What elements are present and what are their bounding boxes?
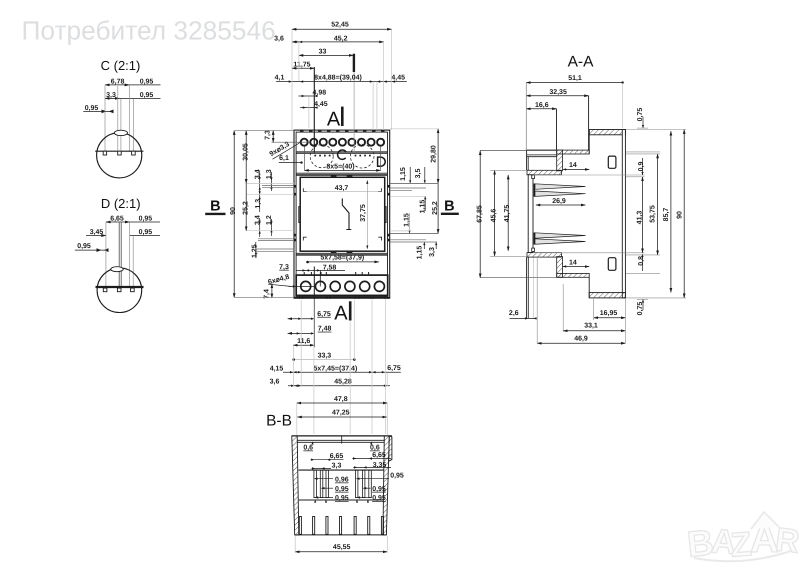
svg-text:33,3: 33,3	[318, 353, 332, 360]
svg-text:3,35: 3,35	[373, 462, 387, 469]
svg-text:51,1: 51,1	[568, 75, 582, 82]
svg-text:14: 14	[569, 162, 577, 169]
svg-text:45,28: 45,28	[334, 379, 352, 386]
svg-text:85,7: 85,7	[663, 208, 670, 222]
svg-text:25,2: 25,2	[242, 201, 249, 215]
svg-text:A: A	[334, 302, 348, 324]
svg-text:5x7,45=(37,4): 5x7,45=(37,4)	[314, 364, 358, 372]
svg-text:0,96: 0,96	[335, 477, 349, 484]
svg-text:6,75: 6,75	[387, 365, 401, 372]
svg-text:7,3: 7,3	[279, 264, 289, 271]
svg-text:0,95: 0,95	[139, 216, 153, 223]
svg-text:29,80: 29,80	[431, 145, 438, 163]
svg-text:8x5=(40): 8x5=(40)	[326, 163, 354, 171]
svg-text:4,15: 4,15	[270, 365, 284, 372]
svg-text:33,1: 33,1	[584, 323, 598, 330]
svg-text:53,75: 53,75	[650, 205, 657, 223]
svg-text:2,6: 2,6	[509, 310, 519, 317]
svg-text:1,2: 1,2	[266, 215, 273, 225]
svg-text:0,6: 0,6	[370, 445, 380, 452]
svg-text:6,75: 6,75	[317, 311, 331, 318]
svg-text:3,5: 3,5	[415, 169, 422, 179]
svg-text:41,75: 41,75	[504, 205, 511, 223]
svg-text:0,95: 0,95	[372, 486, 386, 493]
svg-text:0,95: 0,95	[335, 486, 349, 493]
svg-text:1,15: 1,15	[417, 246, 424, 260]
svg-text:6,1: 6,1	[279, 155, 289, 162]
svg-text:26,9: 26,9	[552, 198, 566, 205]
svg-text:B: B	[444, 198, 454, 214]
svg-text:6,65: 6,65	[110, 216, 124, 223]
svg-text:46,9: 46,9	[574, 335, 588, 342]
svg-text:45,6: 45,6	[491, 209, 498, 223]
svg-text:0,95: 0,95	[372, 495, 386, 502]
svg-text:1,3: 1,3	[255, 199, 262, 209]
svg-text:37,75: 37,75	[360, 204, 367, 222]
svg-text:0,95: 0,95	[390, 473, 404, 480]
svg-text:C (2:1): C (2:1)	[101, 58, 141, 73]
svg-text:0,8: 0,8	[638, 256, 645, 266]
svg-text:D (2:1): D (2:1)	[101, 196, 141, 211]
svg-text:0,95: 0,95	[85, 105, 99, 112]
svg-text:3,3: 3,3	[429, 247, 436, 257]
svg-text:52,45: 52,45	[331, 22, 349, 29]
svg-text:33: 33	[319, 48, 327, 55]
svg-text:B-B: B-B	[266, 413, 292, 430]
svg-text:0,95: 0,95	[77, 243, 91, 250]
svg-text:45,55: 45,55	[333, 544, 351, 551]
svg-text:16,95: 16,95	[600, 310, 618, 317]
svg-text:0,9: 0,9	[638, 162, 645, 172]
svg-text:3,6: 3,6	[274, 36, 284, 43]
svg-text:4,98: 4,98	[312, 89, 326, 96]
svg-text:5x7,58=(37,9): 5x7,58=(37,9)	[320, 253, 364, 261]
svg-text:A-A: A-A	[568, 54, 595, 71]
svg-text:3,4: 3,4	[255, 215, 262, 225]
svg-text:4,45: 4,45	[391, 75, 405, 82]
svg-text:Потребител 3285546: Потребител 3285546	[22, 16, 276, 46]
svg-text:6,65: 6,65	[330, 453, 344, 460]
svg-text:R: R	[773, 520, 800, 560]
svg-text:8x4,88=(39,04): 8x4,88=(39,04)	[314, 74, 362, 82]
svg-text:A: A	[327, 108, 341, 130]
svg-text:0,6: 0,6	[303, 445, 313, 452]
svg-text:11,6: 11,6	[297, 338, 310, 345]
svg-text:1,15: 1,15	[400, 167, 407, 181]
svg-text:11,75: 11,75	[293, 61, 310, 68]
svg-text:47,25: 47,25	[332, 410, 350, 417]
svg-text:3,6: 3,6	[270, 379, 280, 386]
svg-text:6,65: 6,65	[372, 452, 386, 459]
svg-text:7,3: 7,3	[264, 130, 271, 140]
svg-text:7,48: 7,48	[318, 326, 332, 333]
svg-text:90: 90	[230, 207, 237, 215]
svg-text:32,35: 32,35	[549, 89, 567, 96]
svg-text:90: 90	[676, 211, 683, 219]
svg-text:43,7: 43,7	[335, 185, 349, 192]
svg-text:30,05: 30,05	[242, 143, 249, 161]
svg-text:14: 14	[569, 259, 577, 266]
svg-text:0,95: 0,95	[335, 495, 349, 502]
svg-text:4,1: 4,1	[275, 75, 285, 82]
svg-text:3,3: 3,3	[332, 462, 342, 469]
svg-text:B: B	[210, 198, 220, 214]
svg-text:47,8: 47,8	[334, 396, 348, 403]
svg-text:4,45: 4,45	[314, 101, 328, 108]
svg-text:16,6: 16,6	[535, 102, 549, 109]
